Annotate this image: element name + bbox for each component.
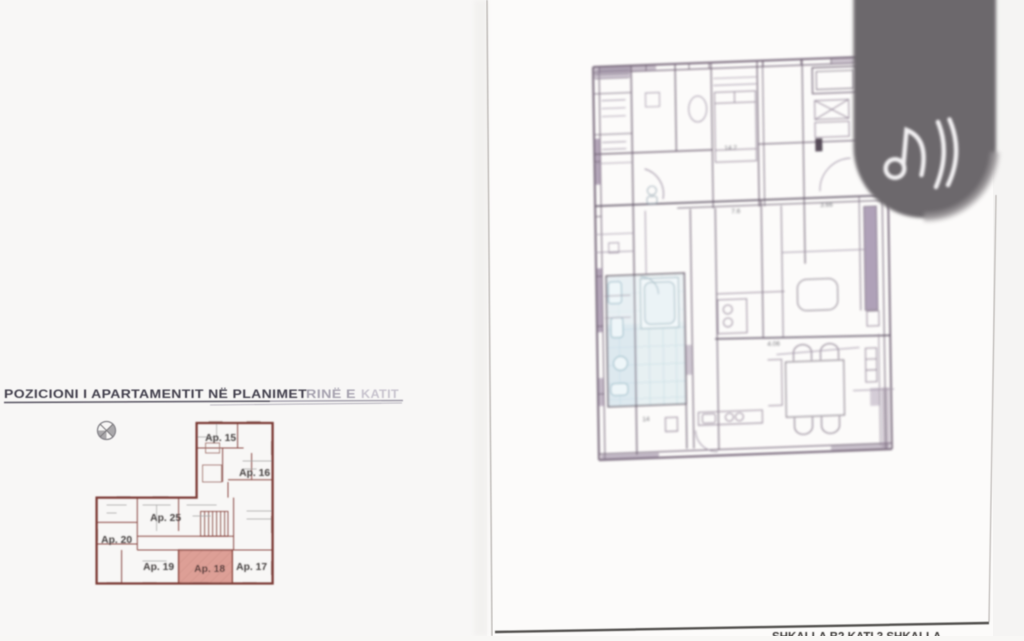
svg-text:SHKALLA B2 KATI 3 SHKALLA: SHKALLA B2 KATI 3 SHKALLA <box>772 632 941 637</box>
svg-text:Ap. 25: Ap. 25 <box>150 513 181 524</box>
svg-text:7.6: 7.6 <box>731 208 741 215</box>
svg-text:Ap. 17: Ap. 17 <box>236 562 267 573</box>
svg-text:KATIT: KATIT <box>361 389 399 401</box>
svg-text:14.2: 14.2 <box>724 144 737 151</box>
svg-text:POZICIONI I APARTAMENTIT NË PL: POZICIONI I APARTAMENTIT NË PLANIMET <box>4 388 307 401</box>
svg-text:3.66: 3.66 <box>820 202 833 209</box>
svg-text:4.06: 4.06 <box>767 340 780 347</box>
svg-text:Ap. 18: Ap. 18 <box>194 564 225 575</box>
svg-text:14: 14 <box>642 416 650 423</box>
svg-text:Ap. 16: Ap. 16 <box>239 468 270 479</box>
svg-text:Ap. 20: Ap. 20 <box>101 535 132 546</box>
svg-text:RINË E: RINË E <box>306 388 356 401</box>
svg-text:Ap. 15: Ap. 15 <box>205 433 236 444</box>
svg-text:Ap. 19: Ap. 19 <box>143 562 174 573</box>
